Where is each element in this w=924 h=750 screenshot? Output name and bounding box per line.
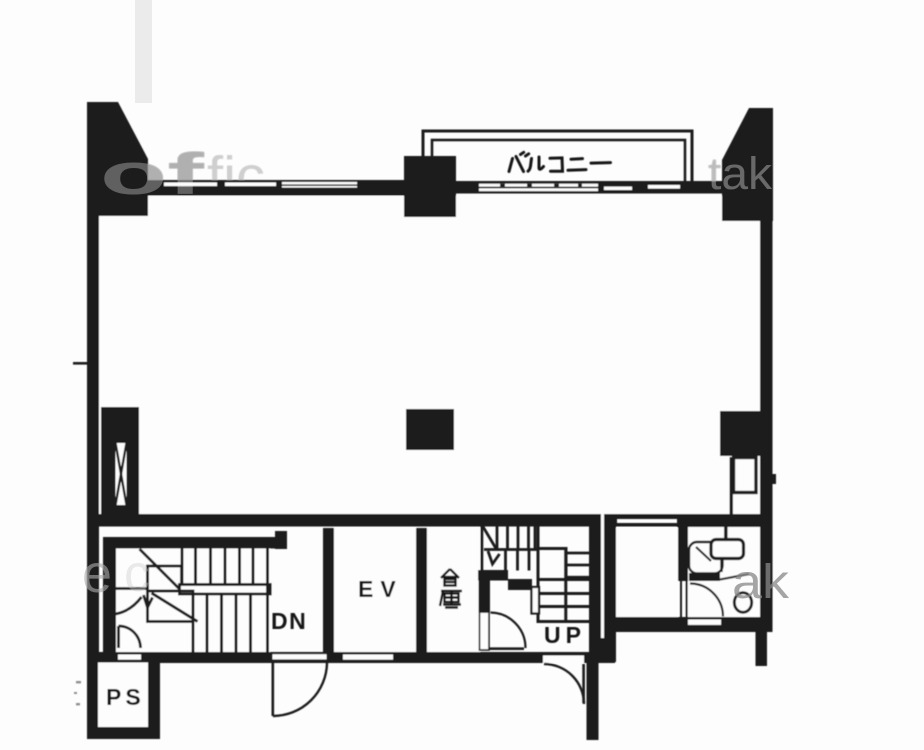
svg-text:PS: PS: [106, 684, 145, 710]
svg-text:tak: tak: [708, 148, 773, 199]
svg-text:of: of: [100, 142, 205, 207]
svg-text:e: e: [82, 544, 112, 604]
svg-text:DN: DN: [271, 608, 307, 634]
svg-text:EV: EV: [358, 576, 403, 602]
svg-text:ak: ak: [732, 556, 790, 609]
svg-text:UP: UP: [544, 622, 586, 648]
svg-text:c: c: [124, 545, 150, 603]
